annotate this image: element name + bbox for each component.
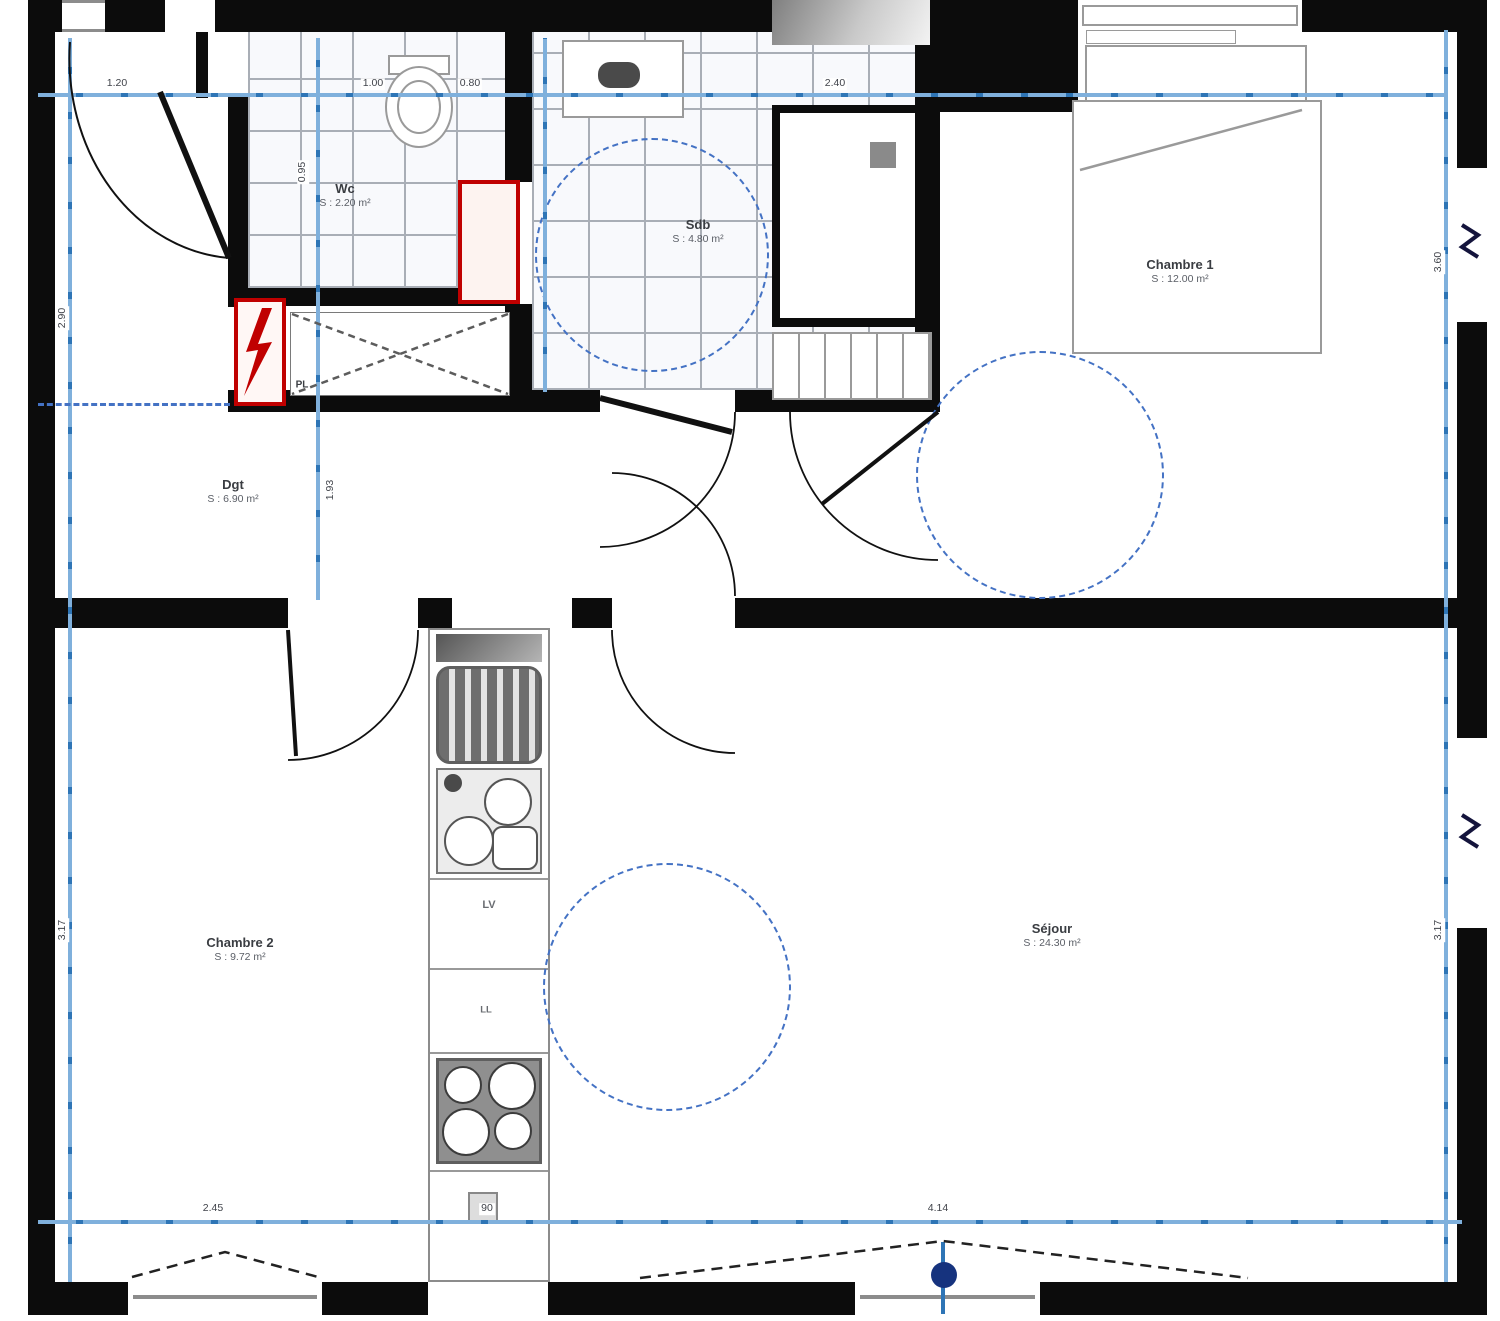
toilet-bowl-inner: [397, 80, 441, 134]
floor-plan: Wc S : 2.20 m² Sdb S : 4.80 m² Chambre 1…: [0, 0, 1500, 1321]
dim-label: 3.17: [57, 918, 69, 942]
door-leaf: [288, 630, 296, 756]
burner-icon: [442, 1108, 490, 1156]
dishwasher-label: LV: [482, 899, 495, 911]
wall: [735, 598, 1457, 628]
room-name: Dgt: [158, 477, 308, 493]
wall: [196, 32, 208, 98]
wall: [572, 598, 612, 628]
dimension-line-right: [1444, 30, 1448, 1282]
wall: [55, 598, 288, 628]
turning-circle: [535, 138, 769, 372]
electrical-panel-icon: [234, 298, 286, 406]
wall: [1457, 0, 1487, 168]
sink-faucet-icon: [598, 62, 640, 88]
dimension-dashed-line: [38, 403, 230, 406]
door-arc: [600, 412, 735, 547]
door-leaf: [160, 92, 229, 258]
radiator-icon: [772, 332, 932, 400]
counter-divider: [430, 878, 548, 880]
counter-divider: [430, 1170, 548, 1172]
right-wall-vent-opening: [1457, 168, 1487, 322]
chambre1-window-frame: [1082, 5, 1298, 26]
shower-wall: [772, 105, 780, 327]
door-marker-dot: [931, 1262, 957, 1288]
oven-icon: [436, 666, 542, 764]
wall: [1457, 322, 1487, 738]
closet-box: [290, 312, 510, 396]
wall: [215, 0, 772, 32]
room-label-wc: Wc S : 2.20 m²: [270, 181, 420, 211]
wall: [28, 1282, 128, 1315]
room-area: S : 4.80 m²: [623, 233, 773, 247]
room-label-dgt: Dgt S : 6.90 m²: [158, 477, 308, 507]
counter-divider: [430, 1052, 548, 1054]
wall: [1040, 1282, 1487, 1315]
wall: [28, 0, 55, 1315]
burner-icon: [488, 1062, 536, 1110]
wall: [322, 1282, 428, 1315]
shower-wall: [772, 105, 928, 113]
room-name: Chambre 1: [1105, 257, 1255, 273]
door-arc: [612, 630, 735, 753]
door-arc: [612, 473, 735, 596]
room-name: Chambre 2: [165, 935, 315, 951]
closet-label: PL: [296, 380, 309, 391]
chambre1-window-sash: [1086, 30, 1236, 44]
counter-divider: [430, 968, 548, 970]
room-area: S : 2.20 m²: [270, 197, 420, 211]
wall: [418, 598, 452, 628]
burner-icon: [494, 1112, 532, 1150]
room-label-chambre1: Chambre 1 S : 12.00 m²: [1105, 257, 1255, 287]
dimension-line-bottom: [38, 1220, 1462, 1224]
shower-drain-icon: [870, 142, 896, 168]
bed-icon: [1072, 100, 1322, 354]
room-area: S : 24.30 m²: [977, 937, 1127, 951]
door-leaf: [600, 398, 732, 432]
washer-label: LL: [480, 1005, 492, 1016]
turning-circle: [916, 351, 1164, 599]
wall: [1457, 928, 1487, 1315]
entrance-sidelight-window: [62, 0, 105, 32]
dim-label: 90: [479, 1203, 495, 1215]
door-arc: [288, 630, 418, 760]
turning-circle: [543, 863, 791, 1111]
dimension-line-inner: [316, 38, 320, 600]
dim-label: 2.90: [57, 306, 69, 330]
wall: [505, 32, 532, 182]
sink-knob-icon: [444, 774, 462, 792]
dim-label: 1.20: [105, 78, 129, 90]
burner-icon: [444, 1066, 482, 1104]
dimension-line-inner: [543, 38, 547, 392]
shower-wall: [772, 318, 928, 327]
room-area: S : 9.72 m²: [165, 951, 315, 965]
dim-label: 3.60: [1433, 250, 1445, 274]
room-name: Wc: [270, 181, 420, 197]
dim-label: 0.95: [297, 160, 309, 184]
sink-basin-icon: [484, 778, 532, 826]
right-wall-vent-opening: [1457, 738, 1487, 928]
wc-door-red-frame: [458, 180, 520, 304]
sdb-window: [772, 0, 930, 45]
room-area: S : 6.90 m²: [158, 493, 308, 507]
sejour-window-line: [860, 1295, 1035, 1299]
room-area: S : 12.00 m²: [1105, 273, 1255, 287]
sink-basin-icon: [492, 826, 538, 870]
dim-label: 4.14: [926, 1203, 950, 1215]
dim-label: 3.17: [1433, 918, 1445, 942]
window-swing-dashes: [132, 1252, 318, 1277]
wall: [548, 1282, 855, 1315]
dimension-line-top: [38, 93, 1447, 97]
dim-label: 1.00: [361, 78, 385, 90]
dimension-line-left: [68, 38, 72, 1282]
dim-label: 0.80: [458, 78, 482, 90]
wall: [105, 0, 165, 32]
room-label-sdb: Sdb S : 4.80 m²: [623, 217, 773, 247]
fridge-icon: [436, 634, 542, 662]
dim-label: 2.45: [201, 1203, 225, 1215]
room-label-sejour: Séjour S : 24.30 m²: [977, 921, 1127, 951]
dim-label: 2.40: [823, 78, 847, 90]
dim-label: 1.93: [325, 478, 337, 502]
wall: [228, 95, 248, 307]
room-label-chambre2: Chambre 2 S : 9.72 m²: [165, 935, 315, 965]
chambre2-window-line: [133, 1295, 317, 1299]
room-name: Sdb: [623, 217, 773, 233]
room-name: Séjour: [977, 921, 1127, 937]
sink-basin-icon: [444, 816, 494, 866]
